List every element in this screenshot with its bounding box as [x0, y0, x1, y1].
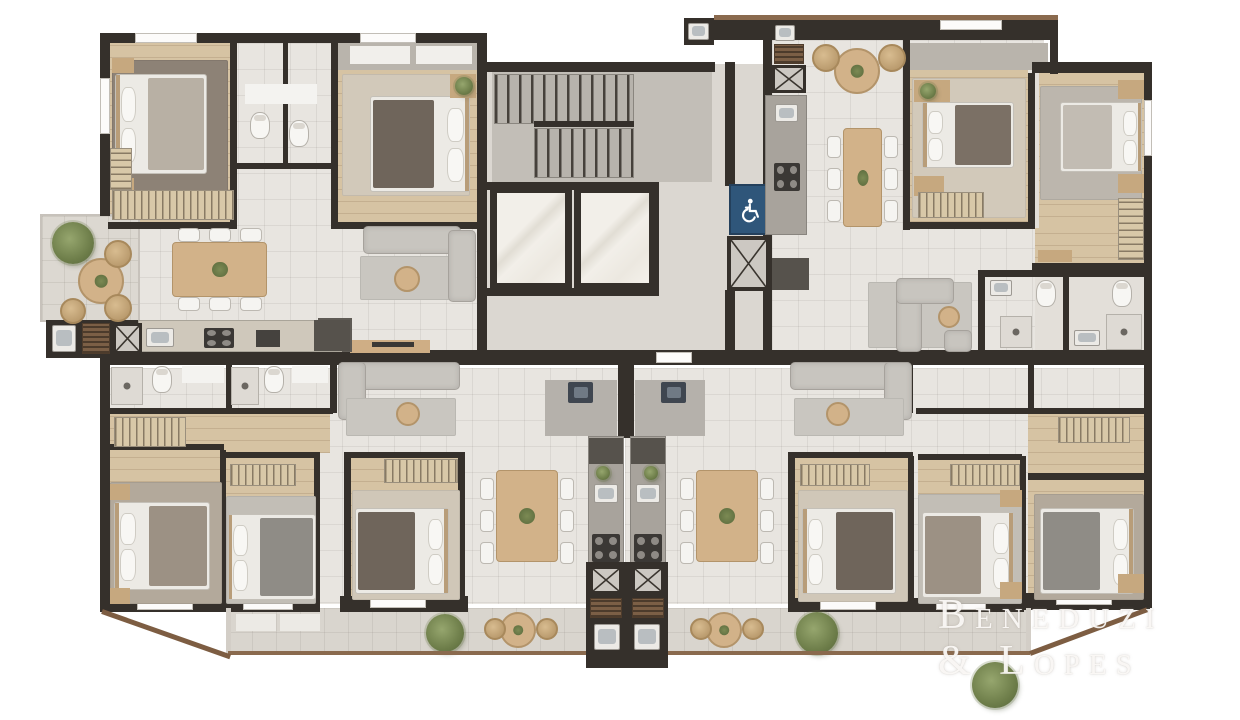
wall: [344, 452, 351, 602]
service-sink: [634, 624, 660, 650]
wall: [795, 452, 913, 458]
wall: [283, 43, 288, 168]
kitchen-sink: [594, 484, 618, 503]
closet: [110, 148, 132, 190]
utility-sink: [52, 325, 76, 352]
chair: [209, 228, 231, 242]
sofa: [896, 278, 954, 304]
wall: [908, 456, 914, 602]
oven: [256, 330, 280, 347]
chair: [680, 542, 694, 564]
stove: [204, 328, 234, 348]
wall: [487, 62, 715, 72]
closet: [918, 192, 984, 218]
dining-table: [843, 128, 882, 227]
staircase-upper-flight: [494, 74, 634, 124]
fridge: [314, 320, 350, 351]
wicker-chair: [536, 618, 558, 640]
kitchen-sink: [636, 484, 660, 503]
wall: [903, 40, 910, 230]
wall: [1032, 62, 1152, 73]
chair: [884, 200, 898, 222]
sofa: [363, 226, 461, 254]
plant: [920, 83, 936, 99]
staircase-lower-flight: [534, 128, 634, 178]
laundry-tank: [568, 382, 593, 403]
chair: [560, 542, 574, 564]
shaft: [590, 566, 622, 594]
wall: [1028, 365, 1034, 410]
wall: [330, 365, 337, 413]
kitchen-sink: [775, 104, 798, 122]
bathroom-sink: [1074, 330, 1100, 346]
bed-2: [370, 96, 470, 192]
wheelchair-accessible-icon: [735, 192, 762, 228]
blanket: [1063, 105, 1113, 169]
chair: [480, 542, 494, 564]
chair: [240, 297, 262, 311]
closet: [112, 190, 234, 220]
wicker-chair: [60, 298, 86, 324]
chair: [827, 200, 841, 222]
shelf: [1038, 250, 1072, 262]
wall: [100, 362, 110, 608]
wall: [725, 62, 735, 186]
bed-5: [114, 502, 210, 590]
kitchen-sink: [146, 328, 174, 347]
window: [360, 33, 416, 43]
wall: [618, 365, 634, 438]
blanket: [1043, 512, 1100, 591]
closet-nook: [908, 43, 1048, 70]
blanket: [373, 100, 434, 188]
vanity: [292, 366, 328, 383]
balcony-side-wall: [226, 608, 231, 654]
floor-plan-image: Beneduzi & Lopes: [0, 0, 1240, 720]
louver-unit: [774, 44, 804, 64]
wall: [918, 454, 1022, 460]
wall: [100, 350, 1152, 365]
stove: [774, 163, 800, 191]
watermark-line-2: & Lopes: [938, 640, 1164, 682]
blanket: [955, 105, 1011, 165]
toilet: [1036, 280, 1056, 307]
nightstand: [1118, 574, 1144, 593]
wall: [1028, 473, 1146, 480]
wicker-chair: [878, 44, 906, 72]
laundry-sink: [775, 25, 795, 41]
wall: [1144, 362, 1152, 608]
nightstand: [1118, 80, 1144, 99]
wall: [1028, 73, 1035, 228]
coffee-table: [396, 402, 420, 426]
closet: [230, 464, 296, 486]
chair: [827, 168, 841, 190]
window: [940, 20, 1002, 30]
shower: [1000, 316, 1032, 348]
wall: [331, 43, 338, 229]
bed-3: [922, 102, 1014, 168]
stove: [634, 534, 662, 562]
vanity: [245, 84, 317, 104]
closet: [1118, 198, 1144, 260]
chair: [760, 478, 774, 500]
laundry-tank: [661, 382, 686, 403]
terrace-plant: [52, 222, 94, 264]
balcony-plant: [426, 614, 464, 652]
shaft: [632, 566, 664, 594]
closet: [1058, 417, 1130, 443]
vanity: [182, 366, 224, 383]
wall: [1032, 263, 1152, 270]
shower: [111, 367, 143, 405]
louver-unit: [82, 323, 110, 354]
wardrobe: [416, 46, 472, 64]
coffee-table: [938, 306, 960, 328]
coffee-table: [394, 266, 420, 292]
balcony-corner-left: [101, 609, 231, 659]
wall: [725, 290, 735, 352]
blanket: [148, 78, 204, 170]
toilet: [250, 112, 270, 139]
shower: [1106, 314, 1142, 350]
service-sink: [594, 624, 620, 650]
bench: [236, 614, 276, 631]
blanket: [260, 518, 313, 597]
shaft: [727, 236, 770, 291]
wicker-chair: [104, 240, 132, 268]
wall: [226, 452, 320, 458]
nightstand: [112, 58, 134, 73]
elevator-2: [574, 186, 656, 290]
window: [1144, 100, 1152, 156]
round-table: [834, 48, 880, 94]
blanket: [358, 512, 415, 591]
wall: [788, 452, 795, 602]
closet: [800, 464, 870, 486]
plant: [455, 77, 473, 95]
nightstand: [1118, 174, 1144, 193]
toilet: [264, 366, 284, 393]
chair: [680, 510, 694, 532]
wall: [237, 163, 337, 169]
plant: [644, 466, 658, 480]
tv: [372, 342, 414, 347]
toilet: [1112, 280, 1132, 307]
shaft: [772, 65, 806, 93]
balcony-plant: [796, 612, 838, 654]
door-gap: [656, 352, 692, 363]
fridge: [772, 258, 809, 290]
chair: [760, 542, 774, 564]
chair: [760, 510, 774, 532]
wicker-chair: [104, 294, 132, 322]
chair: [827, 136, 841, 158]
chair: [480, 510, 494, 532]
dining-table: [172, 242, 267, 297]
fridge: [631, 438, 665, 464]
closet: [114, 417, 186, 447]
nightstand: [1000, 490, 1022, 507]
shower: [231, 367, 259, 405]
dining-table: [696, 470, 758, 562]
closet: [950, 464, 1020, 486]
louver-unit: [632, 598, 664, 618]
blanket: [149, 506, 207, 587]
watermark: Beneduzi & Lopes: [938, 594, 1164, 682]
chair: [209, 297, 231, 311]
chair: [240, 228, 262, 242]
shaft: [113, 323, 142, 354]
louver-unit: [590, 598, 622, 618]
wall: [978, 277, 985, 355]
wicker-chair: [812, 44, 840, 72]
blanket: [925, 516, 981, 595]
nightstand: [110, 484, 130, 500]
chair: [480, 478, 494, 500]
wall: [1063, 270, 1069, 355]
blanket: [836, 512, 893, 591]
wicker-chair: [484, 618, 506, 640]
coffee-table: [826, 402, 850, 426]
bed-4: [1060, 102, 1142, 172]
elevator-1: [490, 186, 572, 290]
watermark-line-1: Beneduzi: [938, 594, 1164, 636]
plant: [596, 466, 610, 480]
chair: [884, 168, 898, 190]
closet: [384, 459, 458, 483]
stair-rail: [534, 121, 634, 127]
wall: [714, 20, 1058, 40]
chair: [680, 478, 694, 500]
chair: [560, 510, 574, 532]
window: [100, 78, 110, 134]
nook-sink: [688, 23, 709, 40]
wall: [903, 222, 1035, 229]
bench: [280, 614, 320, 631]
wardrobe: [350, 46, 410, 64]
chair: [560, 478, 574, 500]
bed-8: [802, 508, 896, 594]
dining-table: [496, 470, 558, 562]
wall: [105, 408, 333, 414]
chair: [884, 136, 898, 158]
chair: [178, 297, 200, 311]
bathroom-sink: [990, 280, 1012, 296]
wall: [477, 33, 487, 362]
wicker-chair: [690, 618, 712, 640]
sofa-chaise: [448, 230, 476, 302]
chair: [178, 228, 200, 242]
stove: [592, 534, 620, 562]
armchair: [944, 330, 972, 352]
bed-6: [228, 514, 316, 600]
wall: [344, 452, 464, 458]
toilet: [152, 366, 172, 393]
nightstand: [110, 588, 130, 604]
bed-7: [355, 508, 449, 594]
fridge: [589, 438, 623, 464]
wheelchair-accessible-sign: [729, 184, 769, 235]
window: [135, 33, 197, 43]
wicker-chair: [742, 618, 764, 640]
toilet: [289, 120, 309, 147]
